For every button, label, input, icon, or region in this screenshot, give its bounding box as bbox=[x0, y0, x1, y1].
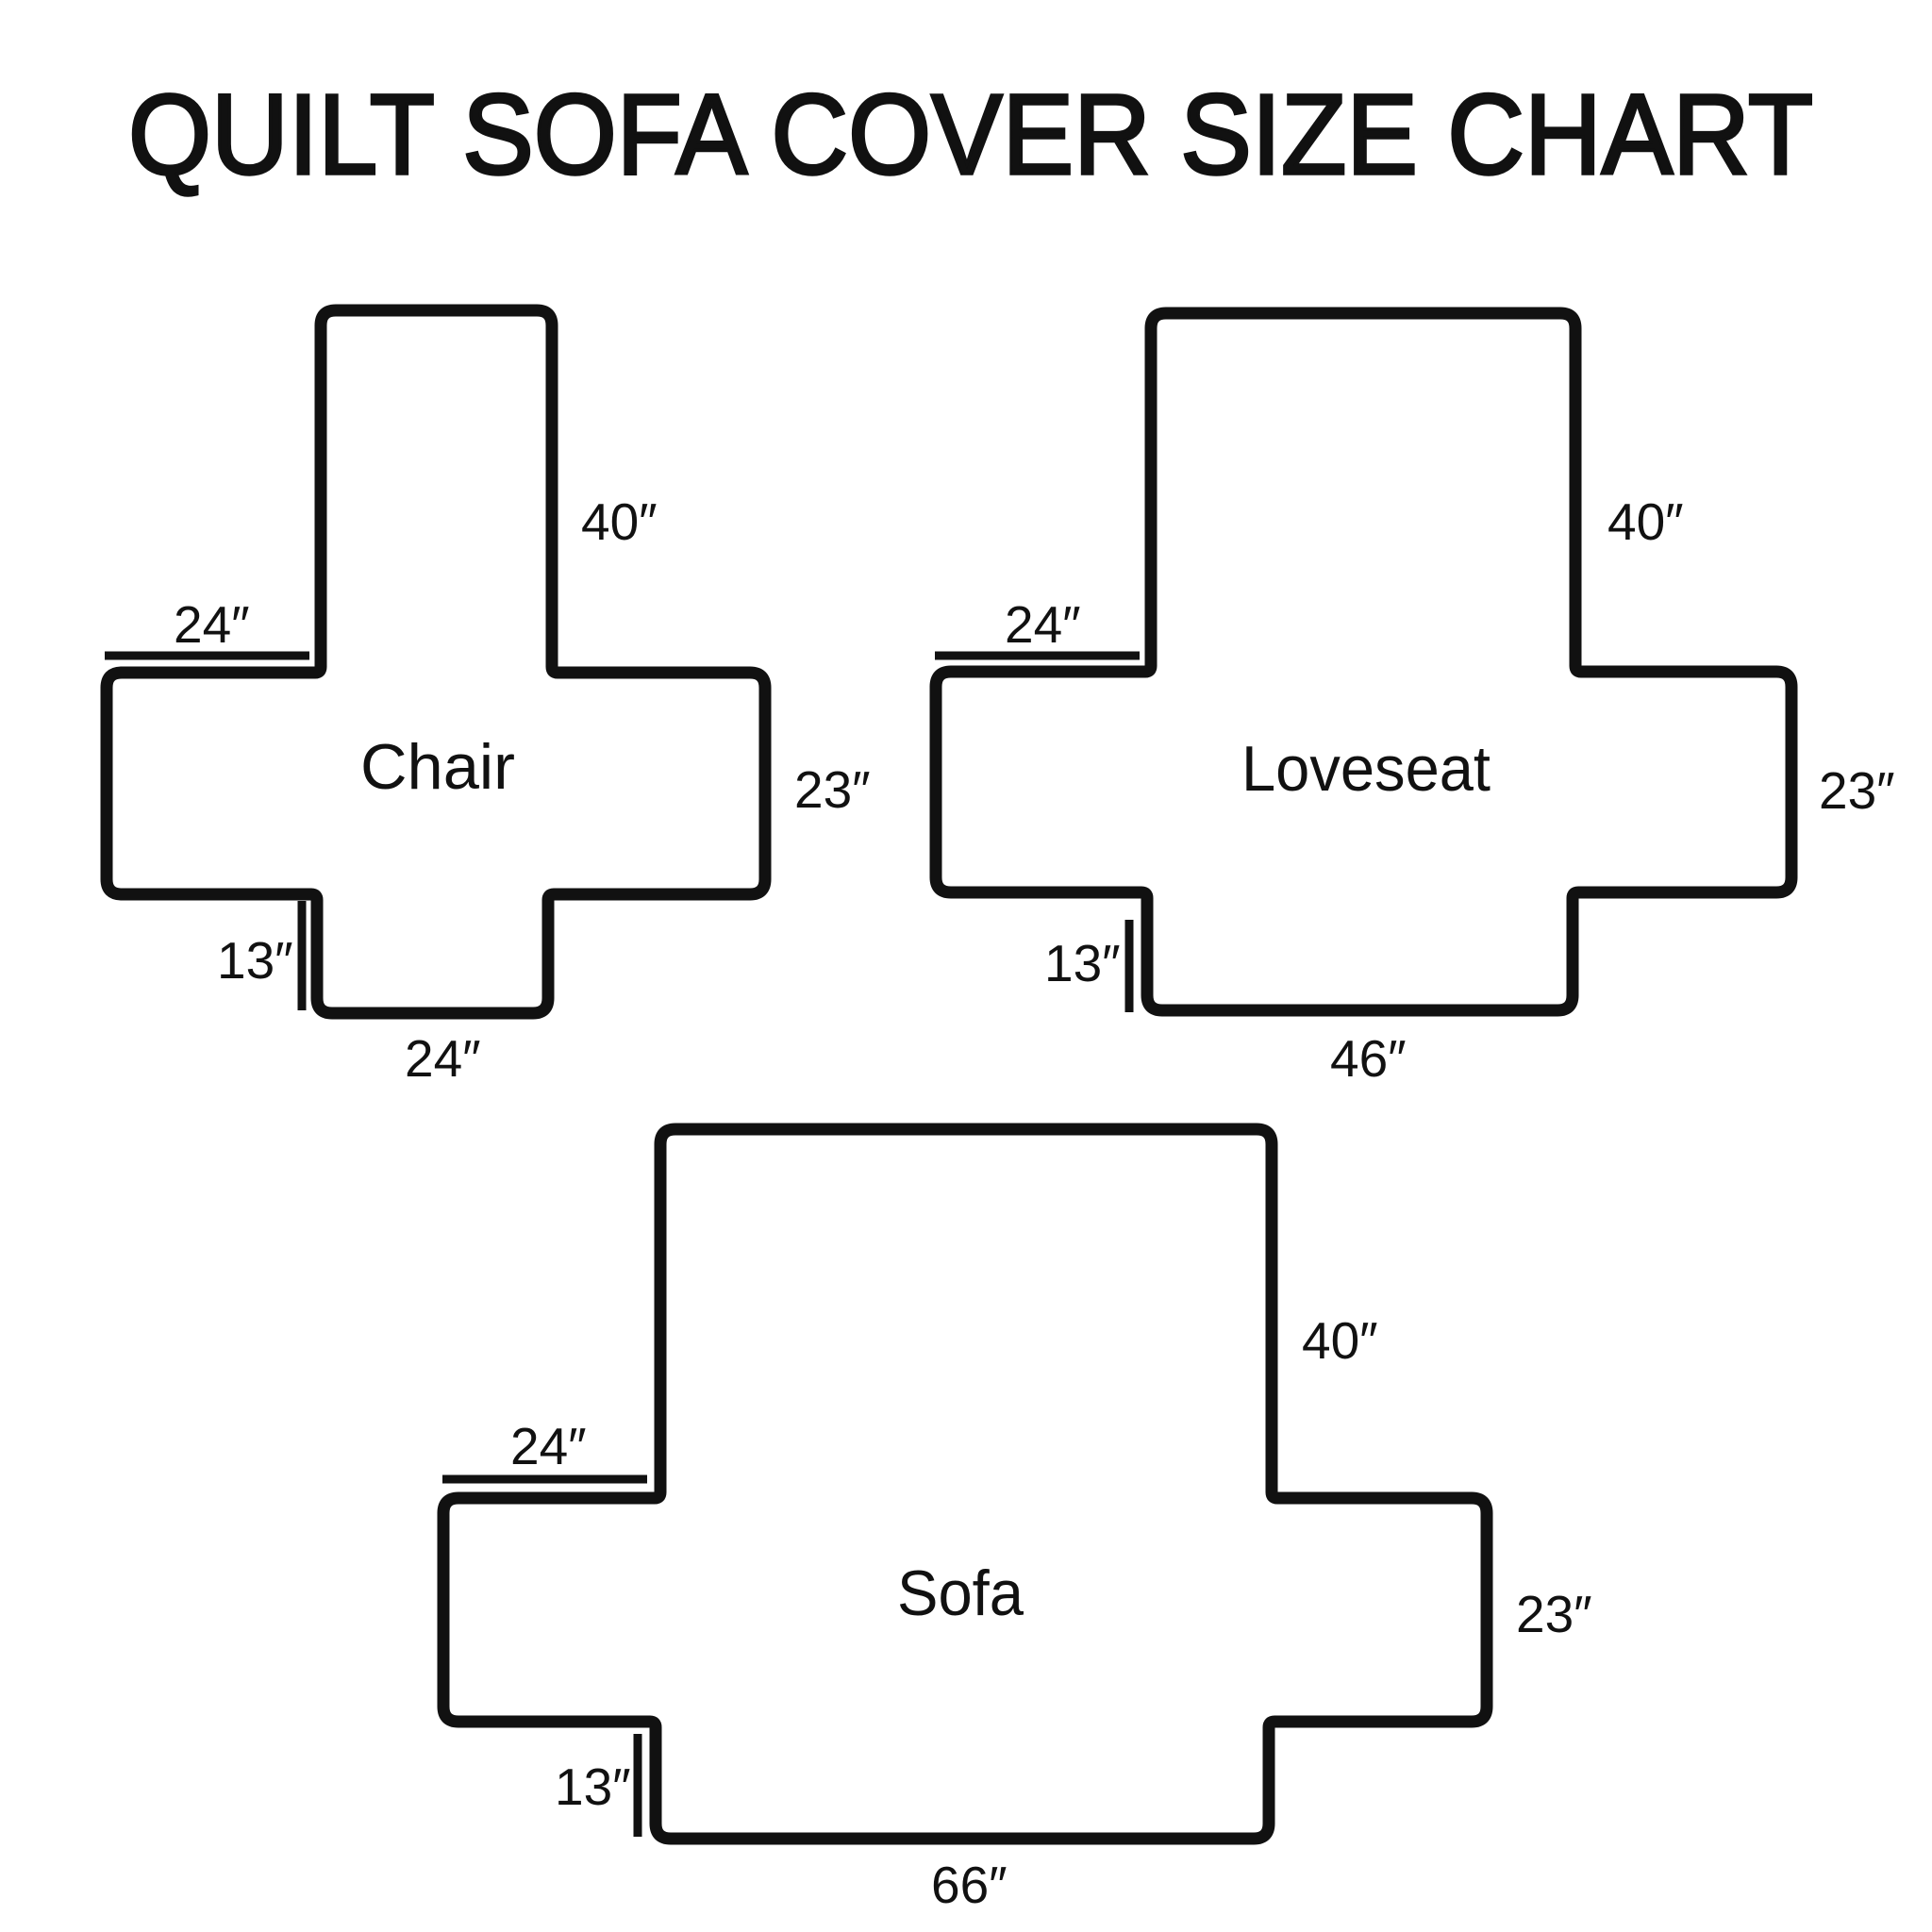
svg-text:23″: 23″ bbox=[1516, 1585, 1592, 1643]
svg-text:24″: 24″ bbox=[1005, 595, 1081, 654]
svg-text:40″: 40″ bbox=[581, 492, 658, 551]
svg-text:40″: 40″ bbox=[1302, 1311, 1378, 1370]
svg-text:Chair: Chair bbox=[360, 731, 515, 803]
svg-text:Sofa: Sofa bbox=[897, 1557, 1024, 1629]
svg-text:24″: 24″ bbox=[405, 1029, 481, 1088]
svg-text:46″: 46″ bbox=[1330, 1029, 1407, 1088]
svg-text:13″: 13″ bbox=[1044, 934, 1121, 992]
svg-text:23″: 23″ bbox=[1819, 761, 1895, 820]
svg-text:Loveseat: Loveseat bbox=[1241, 733, 1491, 805]
svg-text:13″: 13″ bbox=[217, 931, 293, 990]
svg-text:40″: 40″ bbox=[1607, 492, 1684, 551]
svg-text:24″: 24″ bbox=[174, 595, 250, 654]
svg-text:66″: 66″ bbox=[931, 1856, 1008, 1914]
svg-text:23″: 23″ bbox=[794, 760, 871, 819]
svg-text:13″: 13″ bbox=[555, 1757, 631, 1816]
svg-text:QUILT SOFA COVER SIZE CHART: QUILT SOFA COVER SIZE CHART bbox=[128, 70, 1813, 198]
svg-text:24″: 24″ bbox=[510, 1417, 587, 1475]
